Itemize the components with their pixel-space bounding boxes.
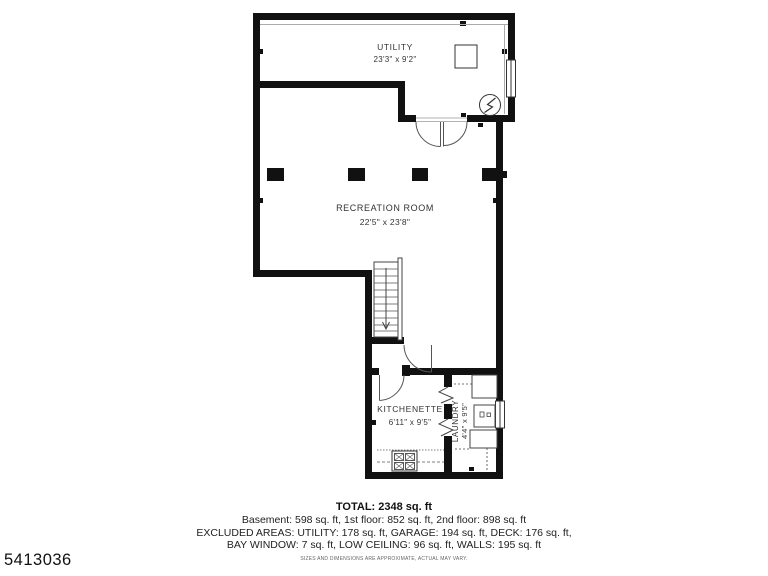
tick-rec-left [258, 198, 263, 203]
recreation-room-label: RECREATION ROOM [310, 202, 460, 214]
utility-window [507, 60, 516, 97]
recreation-room-dims: 22'5" x 23'8" [310, 216, 460, 228]
total-area-text: TOTAL: 2348 sq. ft [0, 501, 768, 513]
kitchenette-room-dims: 6'11" x 9'5" [360, 417, 460, 429]
column-4-tick [503, 171, 507, 178]
laundry-room-dims: 4'4" x 9'5" [459, 386, 471, 456]
kitchenette-door [380, 375, 405, 401]
plan-id-number: 5413036 [4, 551, 72, 570]
rec-room-double-door [416, 118, 467, 147]
laundry-window [496, 401, 505, 428]
column-1 [267, 168, 284, 181]
column-2 [348, 168, 365, 181]
wall-rec-top-right-of-door [467, 115, 515, 122]
disclaimer-text: SIZES AND DIMENSIONS ARE APPROXIMATE, AC… [0, 556, 768, 562]
electrical-panel-icon [480, 95, 501, 116]
dryer [470, 430, 497, 448]
tick-top-wall [460, 21, 466, 26]
wall-right-upper [496, 115, 503, 401]
column-3 [412, 168, 428, 181]
interior-finish-lines [260, 24, 508, 114]
kitchenette-fixtures [377, 450, 444, 471]
utility-sink [474, 405, 495, 427]
stairs-rail [398, 258, 402, 340]
tick-door-right [478, 123, 483, 127]
floor-plan-page: UTILITY 23'3" x 9'2" RECREATION ROOM 22'… [0, 0, 768, 576]
utility-equipment [455, 45, 501, 116]
wall-kitchenette-top-left [365, 368, 379, 375]
utility-room-label: UTILITY [345, 41, 445, 53]
tick-door-left [461, 113, 466, 117]
tick-utility-left [258, 49, 263, 54]
washer [472, 375, 497, 398]
tick-rec-right [493, 198, 498, 203]
wall-rec-left [253, 81, 260, 277]
column-4 [482, 168, 503, 181]
tick-laundry-bottom [469, 467, 474, 471]
support-columns [267, 168, 507, 181]
wall-top [253, 13, 515, 20]
floor-areas-text: Basement: 598 sq. ft, 1st floor: 852 sq.… [0, 514, 768, 526]
excluded-areas-text-line2: BAY WINDOW: 7 sq. ft, LOW CEILING: 96 sq… [0, 539, 768, 551]
wall-rec-bottom-left [253, 270, 372, 277]
excluded-areas-text-line1: EXCLUDED AREAS: UTILITY: 178 sq. ft, GAR… [0, 527, 768, 539]
staircase [374, 258, 402, 340]
stove [392, 451, 417, 471]
wall-utility-bottom [253, 81, 405, 88]
wall-utility-right-upper [508, 13, 515, 60]
wall-bottom [365, 472, 503, 479]
wall-kitchenette-door-stub [402, 365, 410, 376]
kitchenette-room-label: KITCHENETTE [360, 403, 460, 415]
basement-floor-plan-drawing [0, 0, 768, 576]
utility-room-dims: 23'3" x 9'2" [345, 54, 445, 66]
wall-rec-top-left-of-door [398, 115, 416, 122]
furnace-unit [455, 45, 477, 68]
